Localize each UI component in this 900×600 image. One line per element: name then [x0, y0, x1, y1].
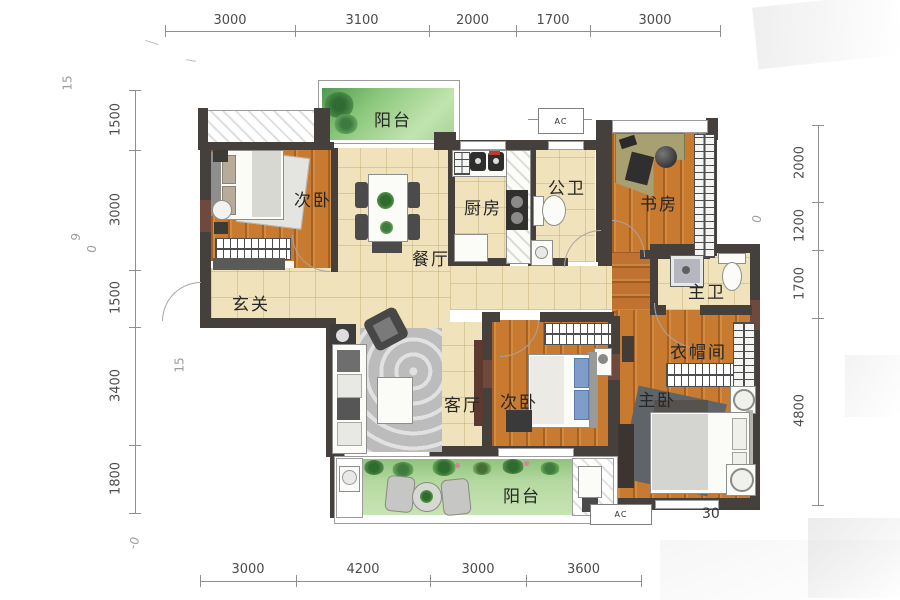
- dim-line-left: [135, 90, 136, 513]
- wash-basin: [535, 246, 548, 259]
- dim-left-1: 1500: [109, 90, 124, 150]
- dim-line-bottom: [200, 581, 641, 582]
- dim-tick: [812, 505, 824, 506]
- pillow: [574, 358, 589, 388]
- stray-mark: [145, 40, 159, 45]
- dim-tick: [129, 327, 141, 328]
- burner: [511, 196, 523, 208]
- flower: [524, 461, 529, 466]
- room-label-study: 书房: [640, 190, 678, 215]
- wardrobe-rack-bedroom-a: [215, 238, 291, 260]
- plant: [432, 459, 456, 476]
- pillow: [732, 418, 747, 450]
- dim-line-top: [165, 31, 720, 32]
- room-label-master: 主卧: [638, 386, 676, 411]
- room-label-bath-master: 主卫: [688, 278, 726, 303]
- dim-tick: [812, 250, 824, 251]
- kitchen-red-tag: [489, 151, 500, 155]
- lamp: [336, 329, 349, 342]
- sink-drain: [475, 158, 481, 164]
- sofa-cushion: [337, 374, 362, 398]
- burner: [511, 212, 523, 224]
- toilet-bowl: [542, 195, 566, 226]
- nightstand-plant: [214, 222, 228, 234]
- hall-console: [622, 336, 634, 362]
- bookshelf: [694, 134, 715, 258]
- floor-plan: 3000 3100 2000 1700 3000 3000 4200 3000 …: [0, 0, 900, 600]
- room-label-cloakroom: 衣帽间: [670, 338, 727, 363]
- sofa-cushion: [337, 398, 360, 420]
- ac-bracket: [528, 119, 538, 120]
- room-label-bath-public: 公卫: [548, 174, 586, 199]
- plant: [364, 460, 384, 475]
- dining-chair: [355, 214, 368, 240]
- stray-text: 15: [61, 75, 75, 90]
- wall: [200, 142, 211, 326]
- dim-line-right: [818, 125, 819, 505]
- table-plant: [380, 221, 393, 234]
- window-bath-public: [548, 141, 584, 150]
- wall: [700, 305, 752, 315]
- plant: [502, 459, 524, 474]
- dim-tick: [129, 150, 141, 151]
- dim-right-2: 1200: [793, 196, 808, 256]
- wall: [540, 312, 614, 322]
- room-label-balcony-top: 阳台: [374, 106, 412, 131]
- wardrobe-rack-bedroom-b: [544, 323, 612, 345]
- sofa-cushion: [337, 422, 362, 446]
- wardrobe-rack-cloakroom: [666, 363, 734, 387]
- dining-chair: [407, 182, 420, 208]
- dim-tick: [812, 202, 824, 203]
- window-study: [612, 120, 708, 133]
- room-label-bedroom-a: 次卧: [294, 186, 332, 211]
- plant: [334, 114, 358, 134]
- wall-accent: [200, 200, 211, 232]
- pillow: [574, 390, 589, 420]
- dim-tick: [720, 25, 721, 37]
- ac-unit-top: AC: [538, 108, 584, 134]
- dim-tick: [129, 513, 141, 514]
- balcony-chair: [384, 475, 416, 514]
- dim-bottom-1: 3000: [200, 562, 296, 577]
- stool: [733, 389, 755, 411]
- dim-tick: [812, 318, 824, 319]
- stray-text: 9: [68, 232, 83, 242]
- dim-left-4: 3400: [109, 356, 124, 416]
- room-label-living: 客厅: [444, 391, 482, 416]
- smudge: [660, 540, 900, 600]
- wall-accent: [482, 360, 492, 388]
- flower: [455, 463, 460, 468]
- nightstand-plant: [213, 150, 228, 162]
- dim-right-3: 1700: [793, 254, 808, 314]
- dim-left-3: 1500: [109, 268, 124, 328]
- dim-right-1: 2000: [793, 133, 808, 193]
- stray-text: 15: [173, 357, 187, 372]
- dim-top-2: 3100: [295, 13, 429, 28]
- wardrobe-shelf-bedroom-a: [213, 258, 285, 270]
- door-arc-entry: [162, 282, 201, 321]
- computer-monitor: [655, 146, 677, 168]
- smudge: [845, 355, 900, 417]
- dim-left-5: 1800: [109, 449, 124, 509]
- stray-text-30: 30: [702, 506, 720, 522]
- dim-bottom-4: 3600: [526, 562, 641, 577]
- sink-drain: [493, 158, 499, 164]
- sofa-cushion: [337, 350, 360, 372]
- wall: [200, 142, 334, 150]
- dim-top-4: 1700: [516, 13, 590, 28]
- dim-bottom-2: 4200: [296, 562, 430, 577]
- table-plant: [377, 192, 394, 209]
- master-wardrobe: [618, 424, 634, 488]
- dim-left-2: 3000: [109, 180, 124, 240]
- room-label-bedroom-b: 次卧: [500, 388, 538, 413]
- table-plant: [420, 490, 433, 503]
- fridge: [454, 234, 488, 262]
- dish-rack: [454, 152, 470, 175]
- dining-chair: [407, 214, 420, 240]
- dim-bottom-3: 3000: [430, 562, 526, 577]
- balcony-chair: [440, 478, 472, 517]
- dim-top-5: 3000: [590, 13, 720, 28]
- room-label-entry: 玄关: [232, 290, 270, 315]
- stray-text: 0: [84, 244, 99, 254]
- window-kitchen: [460, 141, 506, 150]
- floor-entry: [211, 268, 336, 324]
- master-blanket: [652, 414, 708, 490]
- dim-tick: [129, 90, 141, 91]
- dim-top-1: 3000: [165, 13, 295, 28]
- plant: [540, 462, 560, 475]
- dim-tick: [641, 575, 642, 587]
- stool: [730, 468, 754, 492]
- ac-outdoor-unit: [578, 466, 602, 498]
- dim-top-3: 2000: [429, 13, 516, 28]
- room-label-dining: 餐厅: [412, 245, 450, 270]
- side-table: [212, 200, 232, 220]
- plant: [472, 462, 492, 475]
- room-label-kitchen: 厨房: [464, 194, 502, 219]
- wall: [331, 148, 338, 272]
- dim-right-4: 4800: [793, 381, 808, 441]
- bedroom-b-bench: [506, 410, 532, 432]
- dim-tick: [129, 270, 141, 271]
- lamp: [598, 354, 608, 364]
- coffee-table: [377, 377, 413, 424]
- stray-mark: [186, 59, 196, 62]
- stray-text: -0: [125, 535, 142, 551]
- washing-machine-door: [342, 470, 357, 485]
- stray-text: 0: [749, 213, 765, 224]
- wall: [200, 318, 336, 328]
- wardrobe-shelf-cloakroom: [733, 322, 755, 388]
- smudge: [752, 0, 900, 69]
- smudge: [808, 518, 900, 598]
- shower-drain: [682, 266, 690, 274]
- dining-bench: [372, 242, 402, 253]
- dim-tick: [812, 125, 824, 126]
- dining-chair: [355, 182, 368, 208]
- dim-tick: [129, 445, 141, 446]
- room-label-balcony-bottom: 阳台: [503, 482, 541, 507]
- bedroom-a-blanket: [252, 151, 281, 217]
- ac-unit-bottom: AC: [590, 504, 652, 525]
